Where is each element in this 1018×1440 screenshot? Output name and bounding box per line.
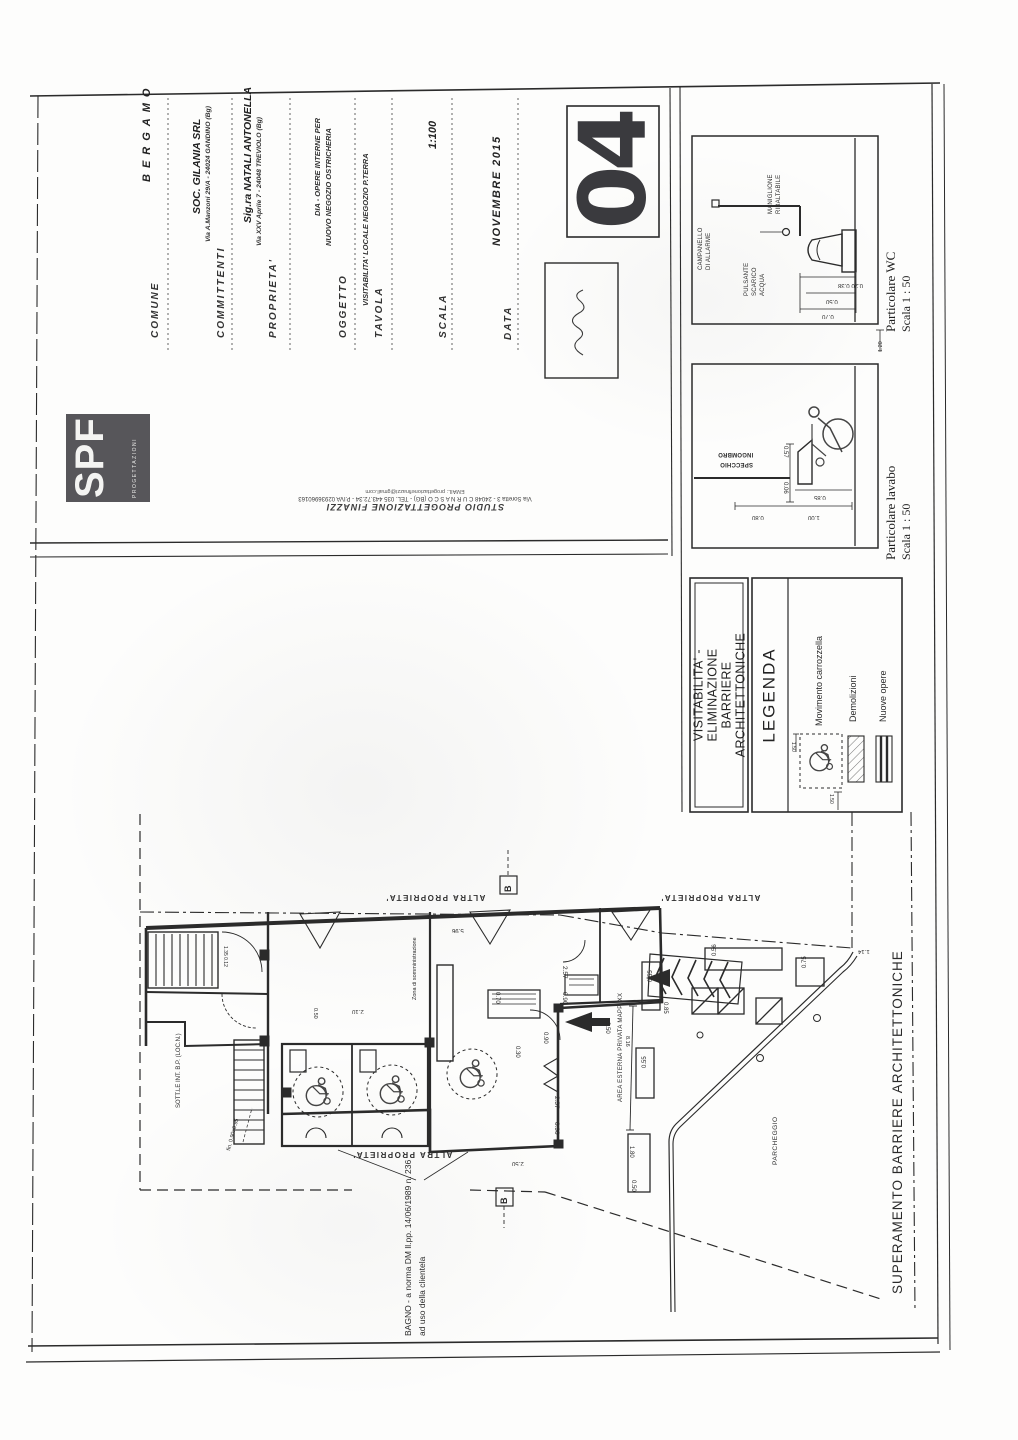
wc-maniglione-label-2: RIBALTABILE (776, 175, 783, 214)
legend-item-nuove-opere: Nuove opere (878, 670, 888, 722)
zona-somministrazione-label: Zona di somministrazione (412, 937, 418, 1000)
dim-label: 2.57 (553, 1096, 560, 1109)
altra-proprieta-right: ALTRA PROPRIETA' (660, 893, 760, 902)
committenti-label: COMMITTENTI (216, 247, 228, 338)
dim-label: 0.75 (802, 956, 808, 968)
studio-stamp: STUDIO PROGETTAZIONE FINAZZI Via Soretta… (250, 488, 580, 512)
dim-label: 0.55 (642, 1056, 648, 1068)
dim-label: 0.20 0.38 (838, 282, 863, 288)
dim-label: 0.70 (494, 992, 500, 1004)
dim-label: 1.50 (828, 794, 834, 804)
tavola-label: TAVOLA (374, 286, 386, 338)
dim-label: 8.16 (624, 1036, 630, 1047)
committenti-address: Via A.Manzoni 29/A - 24024 GANDINO (Bg) (205, 106, 213, 242)
header-line2: BARRIERE ARCHITETTONICHE (719, 633, 747, 758)
dim-label: 5.96 (452, 927, 464, 933)
outdoor-furniture (628, 948, 824, 1192)
dim-label: 1.35 0.12 (222, 946, 228, 967)
dim-label: 0.30 (514, 1046, 520, 1058)
dim-label: 1.50 (790, 742, 796, 752)
wc-pulsante-label-3: ACQUA (760, 274, 767, 296)
dim-label: 0.80 (752, 514, 764, 520)
staircase-central (234, 1040, 264, 1144)
studio-email: EMAIL: progettazionefinazzi@gmail.com (250, 488, 580, 494)
dim-label: 1.20 (878, 341, 884, 352)
dim-label: 0.50 (826, 298, 838, 304)
signature-squiggle (572, 290, 584, 355)
section-marker-bottom: B (499, 1198, 509, 1205)
wc-campanello-label-2: DI ALLARME (706, 233, 713, 270)
spf-logo-text: SPF (68, 417, 113, 498)
lavabo-caption: Particolare lavabo (884, 466, 899, 560)
proprieta-value: Sig.ra NATALI ANTONELLA (242, 87, 254, 223)
drawing-linework (0, 0, 1018, 1440)
dim-label: 2.50 (512, 1160, 524, 1166)
parcheggio-label: PARCHEGGIO (772, 1116, 779, 1165)
dim-label: 2.10 (352, 1008, 364, 1014)
dim-label: 0.50 (630, 1180, 636, 1192)
wheelchair-icon (306, 1078, 330, 1106)
dim-label: 0.06 (782, 482, 788, 494)
legend-item-movimento: Movimento carrozzella (814, 636, 824, 726)
dim-label: 0.50 (312, 1008, 318, 1019)
scala-value: 1:100 (427, 121, 440, 149)
dim-label: 2.50 (604, 1022, 610, 1034)
wheelchair-icon (460, 1060, 484, 1088)
staircase-upper (148, 932, 218, 988)
wc-campanello-label-1: CAMPANELLO (698, 227, 705, 270)
dim-label: 0.90 (553, 1122, 560, 1135)
comune-label: COMUNE (150, 282, 162, 338)
dim-label: 0.90 (561, 992, 568, 1005)
bagno-note-line1: BAGNO - a norma DM ll.pp. 14/06/1989 n. … (404, 1160, 414, 1336)
scala-label: SCALA (438, 294, 450, 338)
scanned-drawing-sheet: BERGAMO COMUNE SOC. GILANIA SRL Via A.Ma… (0, 0, 1018, 1440)
lavabo-ingombro-label-2: SPECCHIO (720, 460, 753, 467)
section-marker-top: B (503, 886, 513, 893)
tavola-value: VISITABILITA' LOCALE NEGOZIO P.TERRA (362, 153, 371, 306)
lavabo-caption-scale: Scala 1 : 50 (900, 504, 914, 560)
altra-proprieta-top: ALTRA PROPRIETA' (385, 893, 485, 902)
legend-title: LEGENDA (752, 578, 788, 812)
header-line1: VISITABILITA' - ELIMINAZIONE (691, 633, 719, 758)
altra-proprieta-bottom: ALTRA PROPRIETA' (352, 1150, 452, 1159)
wc-pulsante-label-2: SCARICO (752, 267, 759, 296)
superamento-label: SUPERAMENTO BARRIERE ARCHITETTONICHE (890, 950, 906, 1294)
oggetto-line2: NUOVO NEGOZIO OSTRICHERIA (325, 128, 334, 246)
data-label: DATA (503, 306, 515, 340)
wc-maniglione-label-1: MANIGLIONE (768, 174, 775, 214)
lavabo-ingombro-label-1: INGOMBRO (718, 450, 753, 457)
oggetto-label: OGGETTO (338, 274, 350, 338)
sheet-number: 04 (567, 106, 659, 237)
wc-caption: Particolare WC (884, 252, 899, 332)
legend-item-demolizioni: Demolizioni (848, 675, 858, 722)
committenti-value: SOC. GILANIA SRL (191, 119, 203, 214)
studio-name: STUDIO PROGETTAZIONE FINAZZI (250, 502, 580, 512)
dim-label: 0.85 (814, 494, 826, 500)
header-box: VISITABILITA' - ELIMINAZIONE BARRIERE AR… (690, 578, 748, 812)
proprieta-address: Via XXV Aprile 7 - 24048 TREVIOLO (Bg) (256, 117, 264, 246)
area-esterna-label: AREA ESTERNA PRIVATA MAPP. XX (618, 993, 625, 1102)
sottostante-label: SOTT.LE INT. B.P. (LOC.N.) (176, 1033, 183, 1108)
wc-pulsante-label-1: PULSANTE (744, 263, 751, 296)
dim-label: 0.85 (662, 1002, 668, 1014)
studio-address: Via Soretta 3 - 24048 C U R N A S C O (B… (250, 495, 580, 501)
dim-label: 1.00 (808, 514, 820, 520)
proprieta-label: PROPRIETA' (268, 258, 280, 338)
nuove-opere-swatch (876, 736, 892, 782)
wheelchair-user-figure (809, 407, 853, 466)
comune-value: BERGAMO (141, 83, 154, 182)
dim-label: 0.56 (712, 944, 718, 956)
bagno-note-line2: ad uso della clientela (418, 1257, 428, 1336)
dim-label: 1.80 (628, 1146, 634, 1158)
oggetto-line1: DIA - OPERE INTERNE PER (314, 118, 323, 216)
dim-label: 1.14 (858, 948, 870, 954)
dim-label: 0.57 (782, 446, 788, 458)
spf-logo: SPF PROGETTAZIONI (66, 414, 150, 502)
data-value: NOVEMBRE 2015 (491, 135, 504, 246)
dim-label: 0.90 (542, 1032, 548, 1044)
wheelchair-icon (380, 1076, 404, 1104)
dim-label: 2.57 (561, 966, 568, 979)
spf-logo-subtext: PROGETTAZIONI (132, 438, 138, 498)
dim-label: 0.55 (648, 970, 654, 982)
bathroom-block (282, 1044, 428, 1146)
dim-label: 0.70 (822, 313, 834, 319)
wc-caption-scale: Scala 1 : 50 (900, 276, 914, 332)
wheelchair-icon (810, 745, 833, 771)
